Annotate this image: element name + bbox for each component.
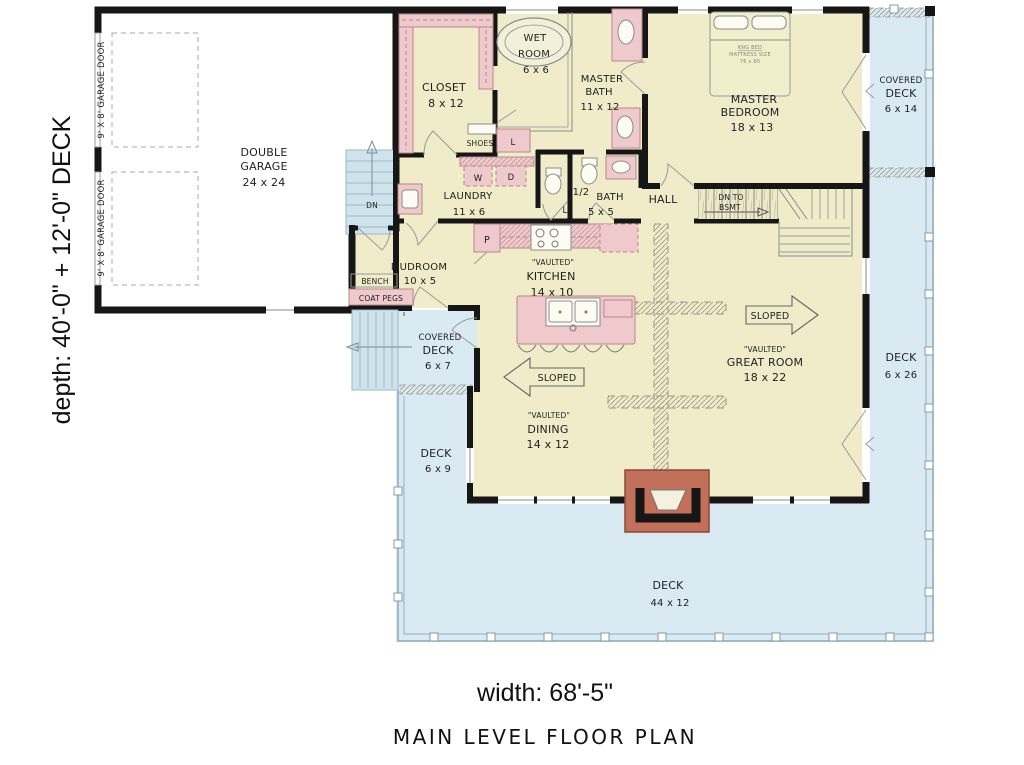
garage-door-label-1: 9' X 8' GARAGE DOOR [97,41,107,138]
room-great-size: 18 x 22 [744,371,787,384]
room-mbed-size: 18 x 13 [731,121,774,134]
deck-e-size: 6 x 26 [885,370,918,381]
deck-e-name: DECK [885,351,917,364]
stairs-bsmt-label2: BSMT [719,203,741,212]
room-dining-name: DINING [527,423,568,436]
room-dining: "VAULTED" DINING 14 x 12 [527,411,571,451]
bed-label-2: MATTRESS SIZE [729,52,771,58]
garage-basement-stairs: DN [346,141,396,234]
refrigerator [600,224,638,252]
room-closet-size: 8 x 12 [428,97,464,110]
stairs-dn-label: DN [366,201,378,210]
washer-label: W [474,174,483,184]
fireplace [625,470,709,532]
room-mudroom-size: 10 x 5 [404,276,437,287]
room-laundry-size: 11 x 6 [453,207,486,218]
room-dining-size: 14 x 12 [527,438,570,451]
width-dimension-label: width: 68'-5" [476,679,613,707]
deck-w-cov-name2: DECK [422,344,454,357]
deck-w-size: 6 x 9 [425,464,451,475]
room-halfbath-name2: BATH [596,192,623,203]
room-garage-name1: DOUBLE [240,146,287,159]
deck-ne-size: 6 x 14 [885,104,918,115]
deck-ne-name1: COVERED [880,76,923,86]
room-garage-name2: GARAGE [240,160,287,173]
deck-s-size: 44 x 12 [650,598,689,609]
bench-label: BENCH [361,277,388,286]
room-mbath-size: 11 x 12 [580,102,619,113]
shoes-label: SHOES [467,139,494,148]
garage-door-label-2: 9' X 8' GARAGE DOOR [97,179,107,276]
deck-w-name: DECK [420,447,452,460]
room-mbath-name1: MASTER [581,74,623,85]
sloped-label-right: SLOPED [751,311,790,322]
coat-pegs-label: COAT PEGS [359,294,403,303]
room-wet-name1: WET [524,33,548,44]
room-kitchen-note: "VAULTED" [532,258,574,267]
deck-w-cov-size: 6 x 7 [425,361,451,372]
linen-label-2: L [563,206,568,216]
stairs-bsmt-label1: DN TO [718,193,743,202]
room-garage-size: 24 x 24 [243,176,286,189]
kitchen-island [517,296,635,352]
deck-railing-hatch [868,8,930,17]
room-mudroom-name: MUDROOM [391,262,447,273]
room-dining-note: "VAULTED" [528,411,570,420]
depth-dimension-label: depth: 40'-0" + 12'-0" DECK [48,115,76,424]
room-master-bedroom: KNG BED MATTRESS SIZE 76 x 80 MASTER BED… [710,12,790,134]
linen-label-1: L [511,138,516,148]
room-mbed-name1: MASTER [731,93,778,106]
room-halfbath-size: 5 x 5 [588,207,614,218]
room-wet-name2: ROOM [518,49,550,60]
room-great-note: "VAULTED" [744,345,786,354]
room-great-name: GREAT ROOM [727,356,803,369]
room-closet-name: CLOSET [422,81,466,94]
floor-plan-drawing: 9' X 8' GARAGE DOOR 9' X 8' GARAGE DOOR … [0,0,1024,765]
deck-ne-name2: DECK [885,87,917,100]
deck-s-name: DECK [652,579,684,592]
room-halfbath-name1: 1/2 [573,187,590,198]
room-mbed-name2: BEDROOM [721,106,780,119]
room-kitchen-name: KITCHEN [526,270,575,283]
dryer-label: D [508,173,515,183]
sloped-label-left: SLOPED [538,373,577,384]
bed-label-1: KNG BED [738,45,762,51]
pantry-label: P [484,235,490,246]
room-hall-name: HALL [649,193,679,206]
room-mbath-name2: BATH [585,87,612,98]
room-laundry-name: LAUNDRY [444,191,494,202]
sheet-title: MAIN LEVEL FLOOR PLAN [393,725,697,749]
deck-w-cov-name1: COVERED [419,333,462,343]
bed-label-3: 76 x 80 [740,59,760,65]
room-wet-size: 6 x 6 [523,65,549,76]
floor-plan-sheet: 9' X 8' GARAGE DOOR 9' X 8' GARAGE DOOR … [0,0,1024,765]
wc-toilet [545,168,561,194]
range [531,225,571,250]
